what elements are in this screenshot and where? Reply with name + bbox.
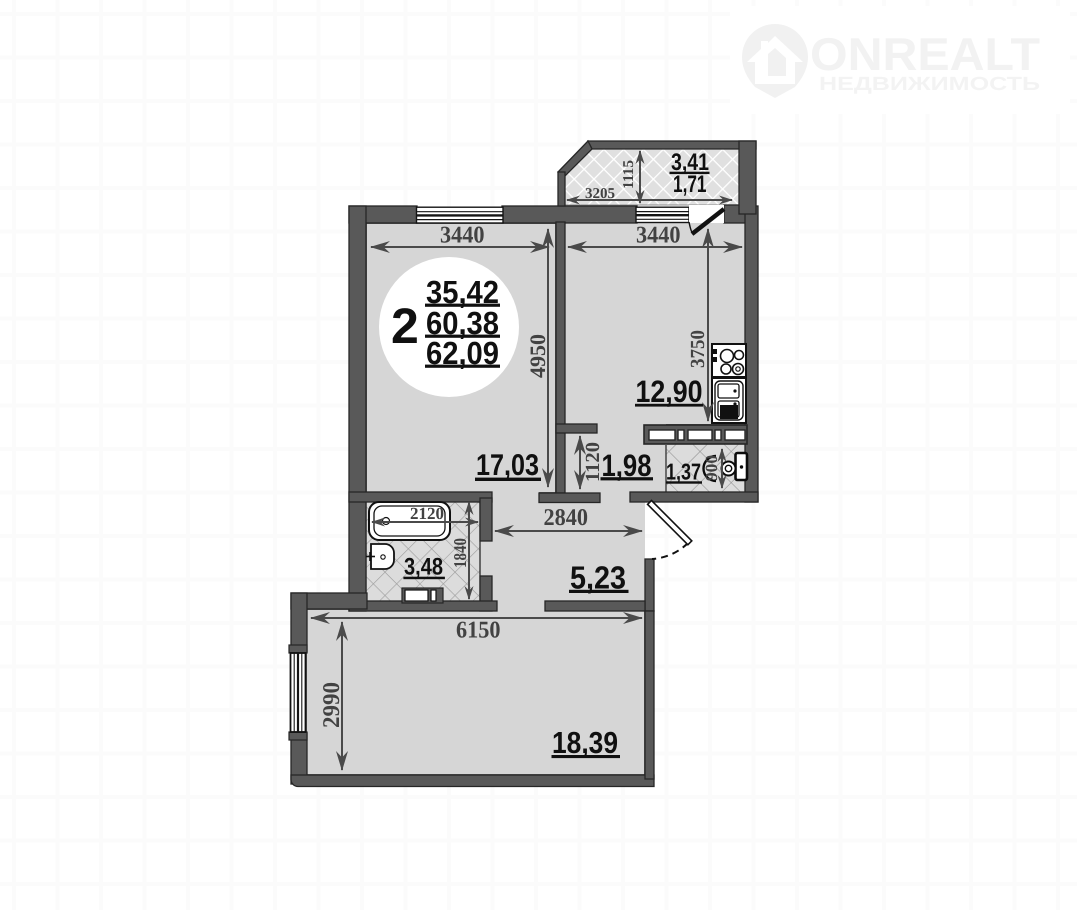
- svg-text:18,39: 18,39: [552, 726, 618, 760]
- svg-text:1840: 1840: [450, 538, 470, 568]
- svg-text:4950: 4950: [525, 334, 550, 378]
- svg-text:17,03: 17,03: [476, 449, 539, 482]
- svg-text:2120: 2120: [410, 504, 444, 523]
- svg-text:2990: 2990: [319, 682, 345, 728]
- svg-text:3440: 3440: [440, 223, 485, 249]
- svg-text:1,37: 1,37: [666, 459, 701, 485]
- svg-text:6150: 6150: [456, 618, 501, 644]
- svg-text:12,90: 12,90: [636, 374, 703, 409]
- svg-text:ONREALT: ONREALT: [810, 28, 1040, 80]
- svg-text:НЕДВИЖИМОСТЬ: НЕДВИЖИМОСТЬ: [819, 74, 1040, 95]
- svg-text:3750: 3750: [687, 330, 709, 368]
- svg-text:900: 900: [702, 455, 721, 481]
- svg-text:2: 2: [391, 298, 419, 354]
- svg-text:3205: 3205: [585, 186, 615, 202]
- svg-text:2840: 2840: [544, 505, 589, 531]
- svg-text:1,71: 1,71: [673, 171, 707, 198]
- svg-text:3440: 3440: [636, 223, 681, 249]
- svg-text:3,48: 3,48: [404, 554, 443, 581]
- svg-text:1115: 1115: [621, 160, 637, 189]
